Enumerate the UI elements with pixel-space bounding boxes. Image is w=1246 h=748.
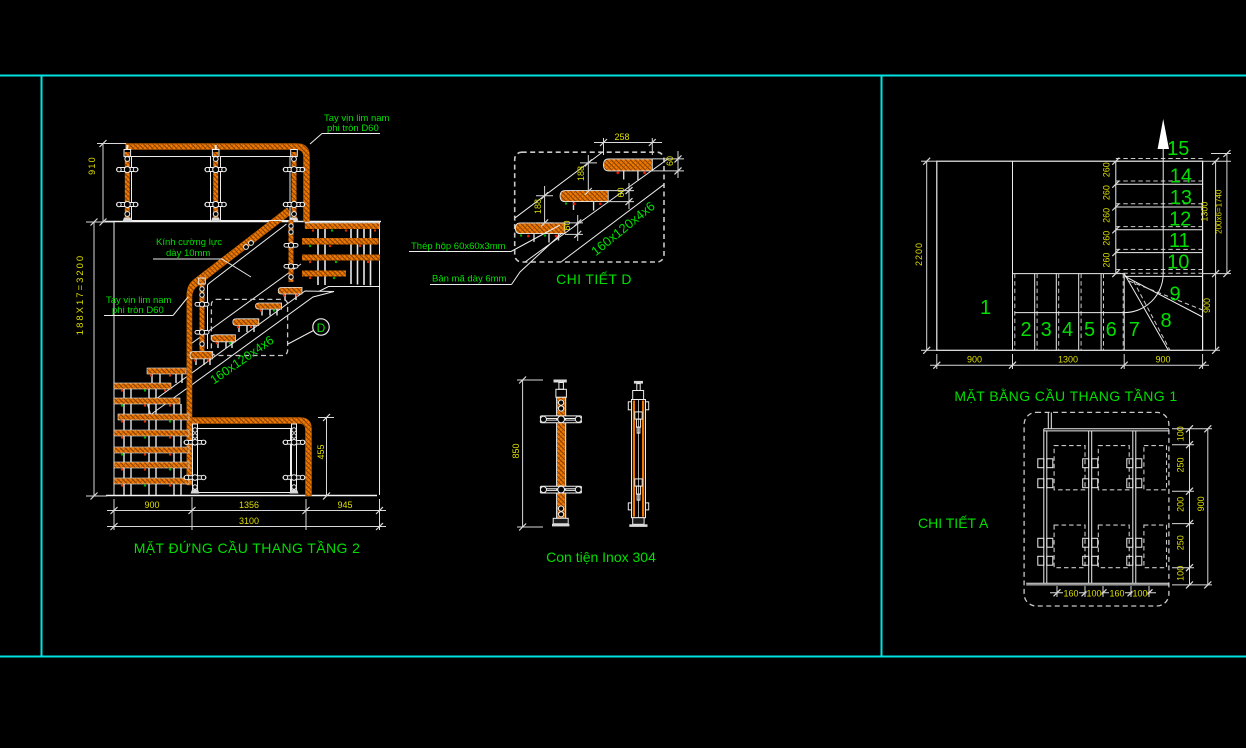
svg-text:1: 1	[980, 297, 991, 319]
svg-text:900: 900	[1202, 298, 1212, 313]
svg-text:11: 11	[1169, 230, 1190, 252]
svg-text:250: 250	[1176, 457, 1186, 472]
svg-text:phi tròn D60: phi tròn D60	[112, 305, 164, 316]
svg-text:188X17=3200: 188X17=3200	[75, 254, 86, 335]
svg-text:100: 100	[1176, 566, 1186, 581]
svg-text:CHI TIẾT A: CHI TIẾT A	[918, 515, 989, 531]
svg-text:8: 8	[1160, 310, 1171, 332]
svg-text:10: 10	[1167, 252, 1189, 274]
svg-text:160: 160	[1109, 589, 1124, 599]
svg-text:850: 850	[511, 443, 521, 458]
svg-text:12: 12	[1169, 208, 1191, 230]
svg-text:200: 200	[1176, 497, 1186, 512]
svg-text:7: 7	[1129, 319, 1140, 341]
svg-text:188: 188	[576, 166, 586, 181]
svg-text:188: 188	[533, 199, 543, 214]
svg-text:1300: 1300	[1058, 355, 1078, 365]
svg-text:13: 13	[1170, 187, 1192, 209]
svg-text:2: 2	[1020, 319, 1031, 341]
svg-text:455: 455	[316, 444, 326, 459]
svg-text:6: 6	[1106, 319, 1117, 341]
svg-text:260: 260	[1102, 162, 1112, 177]
svg-text:260: 260	[1102, 231, 1112, 246]
svg-text:3100: 3100	[239, 516, 259, 526]
svg-text:9: 9	[1169, 284, 1180, 306]
svg-text:Kính cường lực: Kính cường lực	[156, 237, 222, 248]
svg-text:260: 260	[1102, 185, 1112, 200]
svg-text:MẶT ĐỨNG CẦU THANG TẦNG 2: MẶT ĐỨNG CẦU THANG TẦNG 2	[134, 540, 361, 556]
svg-text:60: 60	[616, 187, 626, 197]
svg-text:D: D	[317, 321, 326, 335]
svg-text:CHI TIẾT D: CHI TIẾT D	[556, 271, 632, 287]
svg-text:260: 260	[1102, 208, 1112, 223]
svg-text:3: 3	[1041, 319, 1052, 341]
svg-text:4: 4	[1062, 319, 1073, 341]
svg-text:15: 15	[1167, 138, 1189, 160]
svg-text:dày 10mm: dày 10mm	[166, 248, 210, 259]
svg-text:phi tròn D60: phi tròn D60	[327, 123, 379, 134]
svg-text:100: 100	[1086, 589, 1101, 599]
svg-text:14: 14	[1170, 166, 1192, 188]
svg-text:MẶT BẰNG CẦU THANG TẦNG 1: MẶT BẰNG CẦU THANG TẦNG 1	[954, 387, 1177, 404]
svg-text:900: 900	[144, 500, 159, 510]
svg-text:260: 260	[1102, 253, 1112, 268]
svg-text:258: 258	[614, 132, 629, 142]
svg-text:1356: 1356	[239, 500, 259, 510]
svg-text:900: 900	[967, 355, 982, 365]
svg-text:910: 910	[87, 156, 97, 175]
svg-text:Con tiện Inox 304: Con tiện Inox 304	[546, 549, 656, 565]
svg-text:100: 100	[1176, 426, 1186, 441]
svg-text:945: 945	[337, 500, 352, 510]
svg-text:160: 160	[1063, 589, 1078, 599]
svg-text:2200: 2200	[914, 242, 924, 266]
svg-text:Bản mã dày 6mm: Bản mã dày 6mm	[432, 274, 507, 285]
svg-text:900: 900	[1196, 496, 1206, 511]
svg-text:60: 60	[562, 220, 572, 230]
svg-text:1300: 1300	[1200, 202, 1210, 222]
svg-text:100: 100	[1132, 589, 1147, 599]
svg-text:200x6=1740: 200x6=1740	[1214, 189, 1223, 234]
svg-text:5: 5	[1084, 319, 1095, 341]
svg-text:900: 900	[1155, 355, 1170, 365]
svg-text:250: 250	[1176, 535, 1186, 550]
svg-text:60: 60	[665, 156, 675, 166]
svg-text:Thép hộp 60x60x3mm: Thép hộp 60x60x3mm	[411, 241, 506, 252]
